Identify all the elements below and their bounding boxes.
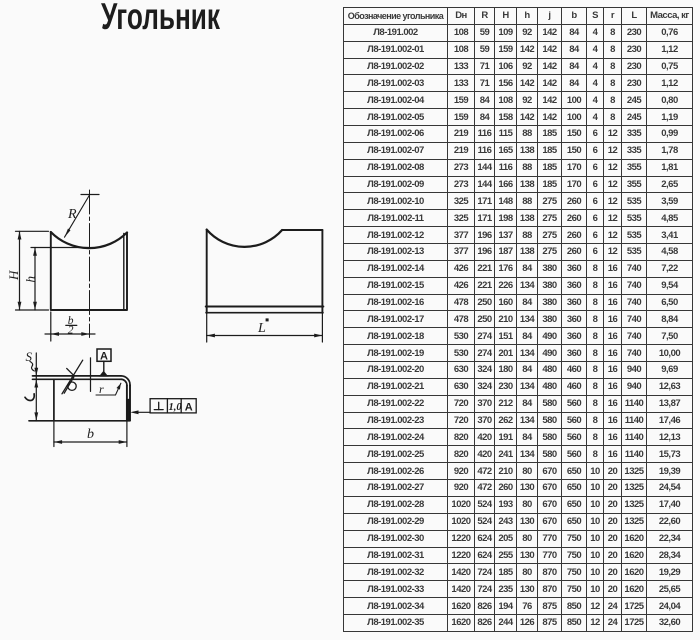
svg-text:2: 2 xyxy=(68,324,74,336)
svg-text:A: A xyxy=(185,402,193,414)
svg-text:h: h xyxy=(23,276,38,283)
svg-text:b: b xyxy=(87,427,94,442)
svg-text:R: R xyxy=(67,207,77,222)
svg-text:H: H xyxy=(6,270,21,281)
svg-text:L: L xyxy=(257,321,266,336)
svg-text:r: r xyxy=(99,382,104,396)
svg-text:1,0: 1,0 xyxy=(169,402,183,413)
